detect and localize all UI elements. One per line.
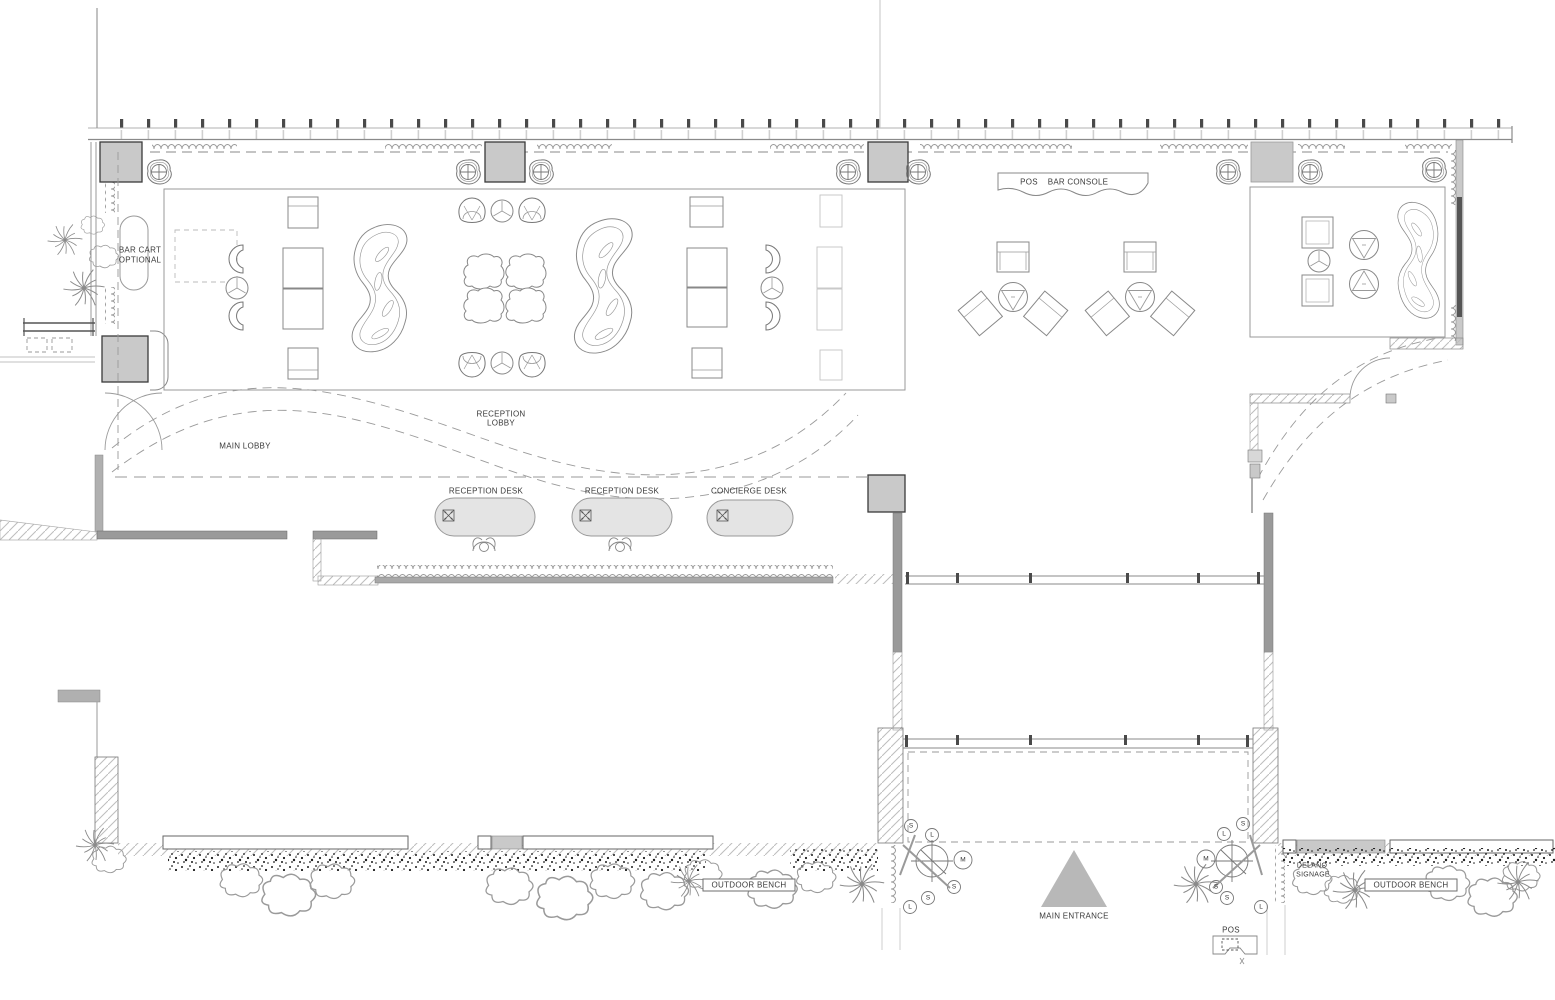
right-lounge-room [1248,140,1463,513]
bar-seating-group [958,242,1068,336]
reception-desk-label-1: RECEPTION DESK [449,487,523,496]
plant-tag: L [1222,831,1226,838]
plan-linework [0,0,1555,1000]
reception-area [375,498,895,584]
plant-tag: S [1214,884,1218,891]
curtain-wall-band [88,0,1512,152]
bar-seating-group [1085,242,1195,336]
plant-tag: S [926,895,930,902]
plant-tag: L [908,904,912,911]
concierge-desk-label: CONCIERGE DESK [711,487,787,496]
plant-tag: S [909,823,913,830]
site-landscape [76,818,1555,965]
main-lobby-furniture [164,189,905,390]
outdoor-bench-label-right: OUTDOOR BENCH [1364,879,1457,892]
bar-console-label: BAR CONSOLE [1048,178,1109,187]
plant-tag: S [1225,895,1229,902]
reception-desk-label-2: RECEPTION DESK [585,487,659,496]
outdoor-bench-label-left: OUTDOOR BENCH [702,879,795,892]
delano-signage-label-line1: DELANO [1297,863,1327,870]
main-entrance-label: MAIN ENTRANCE [1039,912,1108,921]
reception-lobby-label-line1: RECEPTION [477,410,526,419]
pos-label: POS [1020,178,1038,187]
pos-station-label: POS [1222,926,1240,935]
plant-tag: S [1241,821,1245,828]
floor-plan: BAR CART OPTIONAL MAIN LOBBY RECEPTION L… [0,0,1555,1000]
reception-lobby-label-line2: LOBBY [487,419,515,428]
pos-station-fixture [1213,936,1257,964]
bar-cart-label-line2: OPTIONAL [119,256,161,265]
bar-cart-label-line1: BAR CART [119,246,161,255]
plant-tag: S [952,884,956,891]
plant-tag: M [960,857,965,864]
bar-console-area [958,173,1195,336]
left-wall [0,142,378,843]
plant-tag: L [1259,904,1263,911]
entry-planting-left [900,820,972,914]
plant-tag: M [1203,856,1208,863]
delano-signage-label-line2: SIGNAGE [1296,872,1330,879]
plant-tag: L [930,832,934,839]
main-lobby-label: MAIN LOBBY [219,442,270,451]
main-entrance-triangle [1041,850,1107,907]
